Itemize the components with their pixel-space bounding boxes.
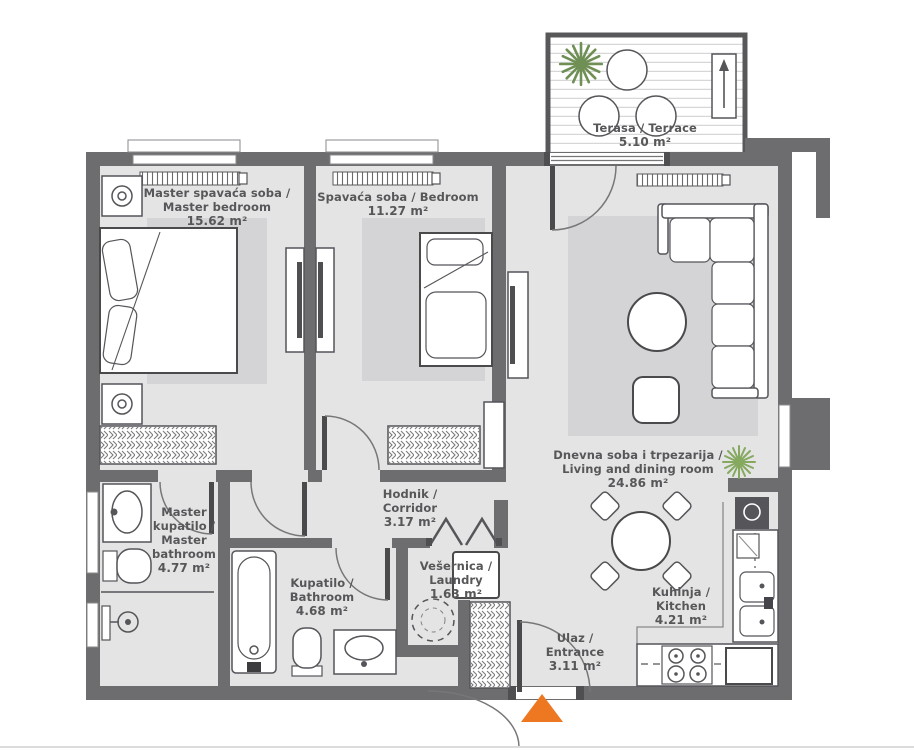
room-label-master-bathroom: Master kupatilo / Master bathroom 4.77 m… [152,505,216,575]
washbasin [103,484,151,542]
terrace-plant-icon [560,43,602,85]
fridge [726,648,772,684]
room-label-bathroom: Kupatilo / Bathroom 4.68 m² [290,576,354,618]
entrance-wardrobe [470,602,510,688]
ottoman [633,377,679,423]
dresser [316,248,334,352]
room-label-entrance: Ulaz / Entrance 3.11 m² [546,631,605,673]
bathroom-window [87,603,98,647]
living-plant-icon [723,446,755,478]
room-label-laundry: Vešernica / Laundry 1.63 m² [420,559,492,601]
terrace-sliding-door [544,152,670,166]
room-label-terrace: Terasa / Terrace 5.10 m² [593,121,697,149]
nightstand [102,384,142,424]
faucet [764,597,773,609]
room-label-living: Dnevna soba i trpezarija / Living and di… [553,448,722,490]
window-sill [128,140,240,152]
nightstand [102,176,142,216]
toilet [292,628,322,676]
floor-plan-drawing [0,0,914,750]
pillow [427,239,483,265]
terrace-planter [712,54,736,118]
tv-console [508,272,528,378]
radiators [140,172,730,186]
terrace-table [607,50,647,90]
tall-cabinet [484,402,504,468]
dining-table [612,512,670,570]
bedroom-window [133,155,236,164]
room-label-master-bedroom: Master spavaća soba / Master bedroom 15.… [144,186,291,228]
single-bed [420,233,492,366]
floor-plan: Master spavaća soba / Master bedroom 15.… [0,0,914,750]
bedroom-window [330,155,433,164]
sink-bowl [740,606,774,636]
stove [662,646,712,684]
window-sill [326,140,438,152]
kitchen-counter-right [733,530,778,642]
bathtub [232,551,276,673]
kitchen-counter-bottom [637,644,778,686]
room-label-corridor: Hodnik / Corridor 3.17 m² [383,487,438,529]
room-label-kitchen: Kuhinja / Kitchen 4.21 m² [652,585,710,627]
bathroom-window [87,492,98,573]
kitchen-appliance [735,497,769,529]
page-bottom-rule [0,746,914,748]
entrance-opening [514,687,578,699]
tub-faucet [247,662,261,672]
dresser [286,248,304,352]
coffee-table [628,293,686,351]
duvet [426,292,486,358]
room-label-bedroom: Spavaća soba / Bedroom 11.27 m² [317,190,479,218]
wardrobe [388,426,480,464]
vanity-sink [334,630,396,674]
toilet [103,549,151,583]
wardrobe [100,426,216,464]
living-window [779,405,790,467]
double-bed [100,228,237,373]
